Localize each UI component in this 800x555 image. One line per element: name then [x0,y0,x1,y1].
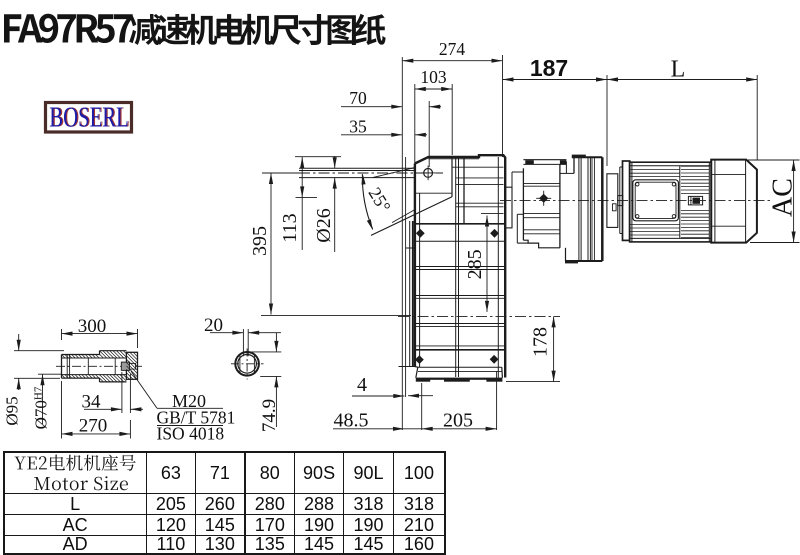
svg-text:4: 4 [357,374,367,396]
svg-text:395: 395 [249,226,271,256]
svg-text:274: 274 [439,39,466,59]
svg-text:187: 187 [530,55,568,81]
svg-text:48.5: 48.5 [334,410,369,432]
svg-text:70: 70 [349,88,367,108]
svg-text:205: 205 [443,410,473,432]
svg-text:Ø70H7: Ø70H7 [32,386,51,429]
svg-text:300: 300 [78,316,107,337]
svg-text:Ø26: Ø26 [313,208,335,242]
svg-text:285: 285 [464,249,486,279]
svg-text:35: 35 [349,116,367,136]
svg-text:74.9: 74.9 [259,399,280,432]
svg-text:Ø95: Ø95 [3,396,22,425]
svg-text:103: 103 [420,67,447,87]
svg-text:34: 34 [82,391,102,412]
svg-text:BOSERL: BOSERL [49,103,128,134]
svg-text:178: 178 [530,327,552,357]
svg-text:25°: 25° [364,184,394,216]
svg-text:270: 270 [79,416,108,437]
svg-text:20: 20 [204,315,223,336]
svg-text:L: L [671,57,686,83]
svg-text:113: 113 [279,213,301,242]
svg-text:ISO 4018: ISO 4018 [157,424,225,444]
svg-text:AC: AC [768,178,799,217]
